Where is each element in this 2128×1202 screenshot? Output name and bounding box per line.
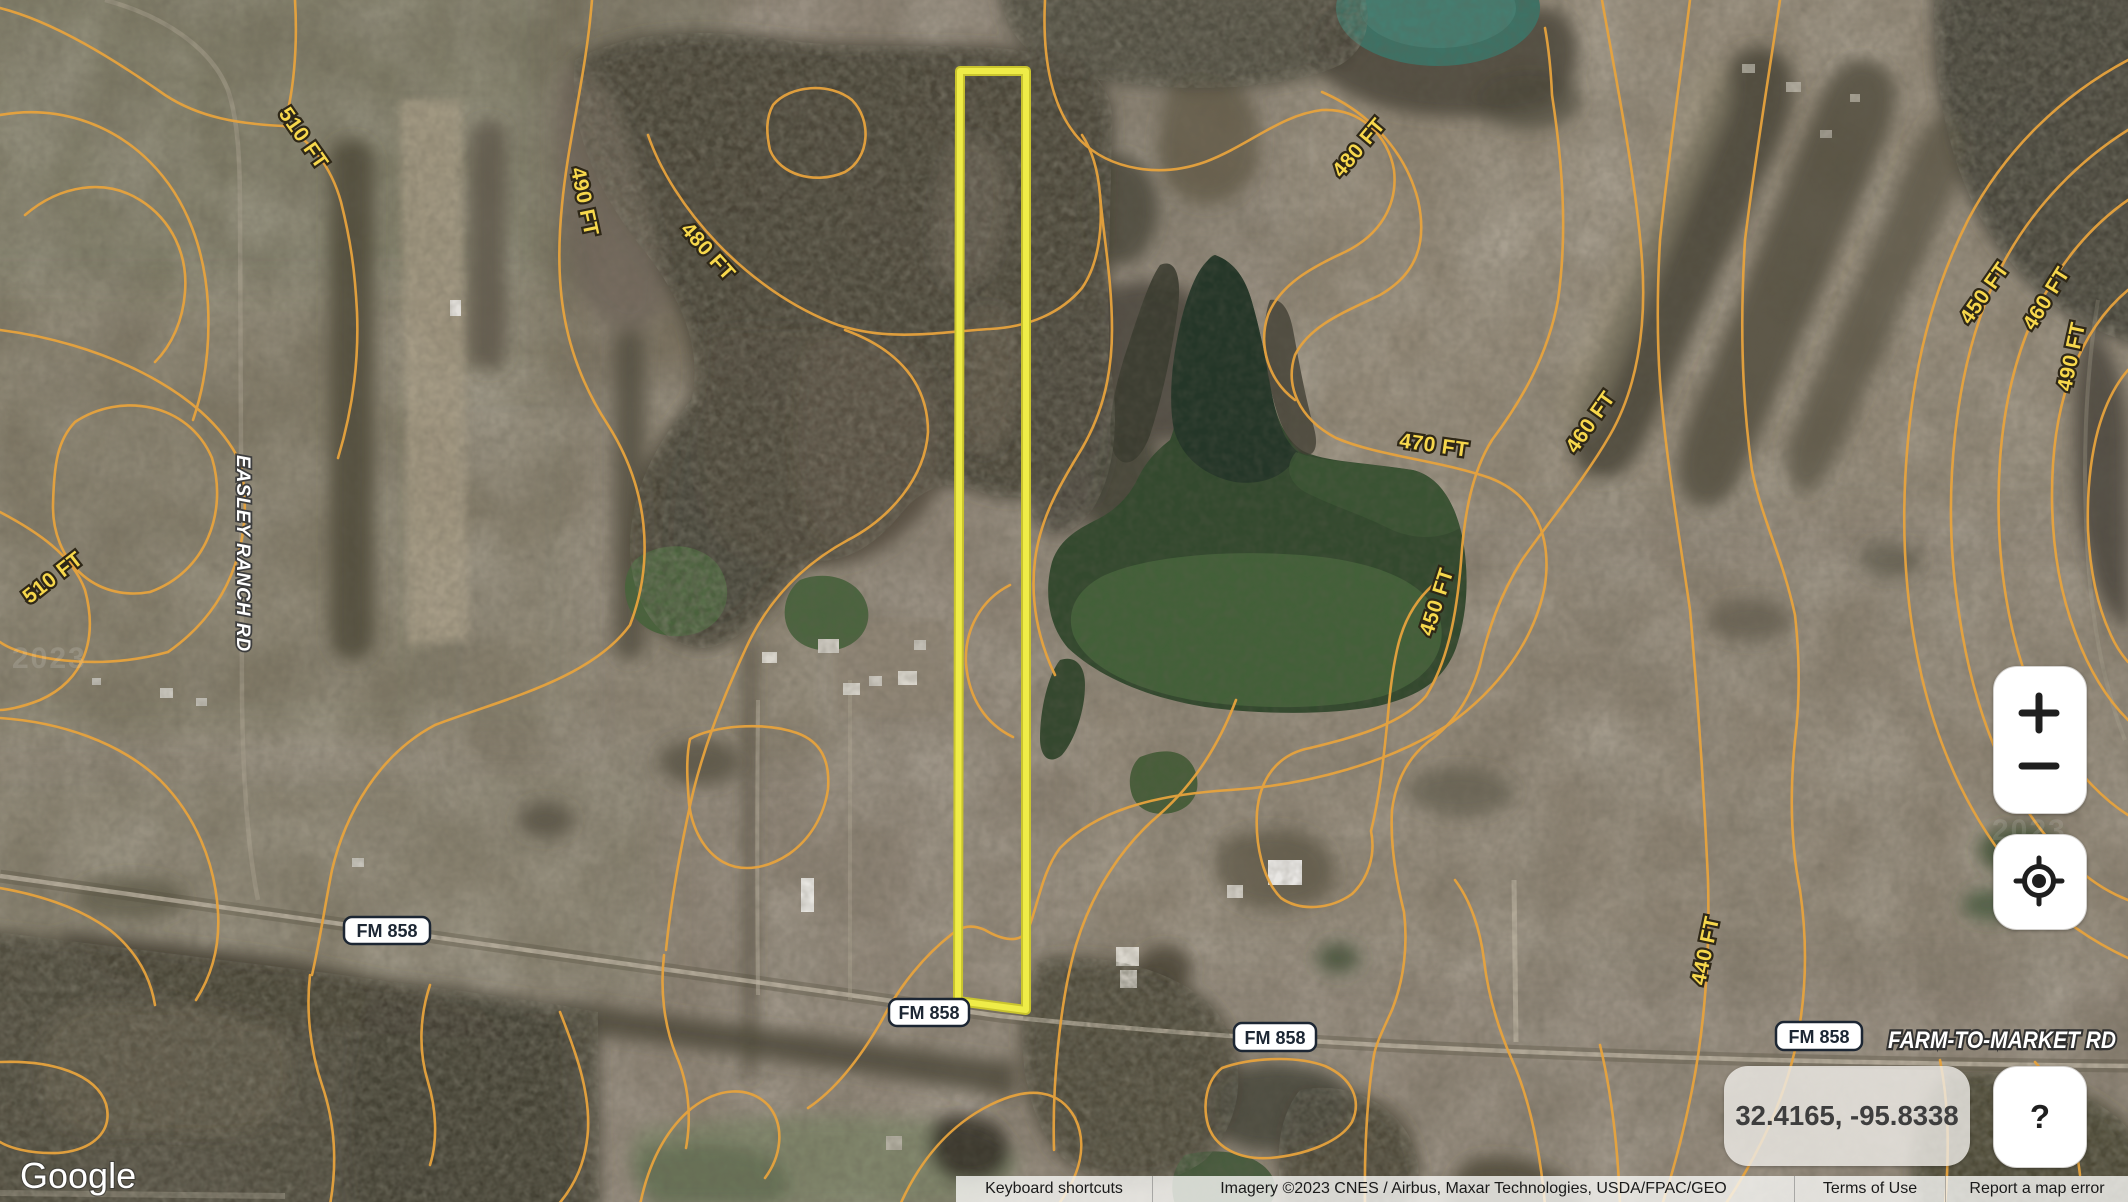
svg-text:2023: 2023 [12,642,87,675]
svg-text:FM 858: FM 858 [898,1003,959,1023]
svg-text:FM 858: FM 858 [356,921,417,941]
svg-text:FARM-TO-MARKET RD: FARM-TO-MARKET RD [1888,1027,2116,1054]
svg-text:Google: Google [20,1155,136,1196]
svg-text:EASLEY RANCH RD: EASLEY RANCH RD [232,455,253,652]
svg-text:FM 858: FM 858 [1788,1027,1849,1047]
svg-text:FM 858: FM 858 [1244,1028,1305,1048]
